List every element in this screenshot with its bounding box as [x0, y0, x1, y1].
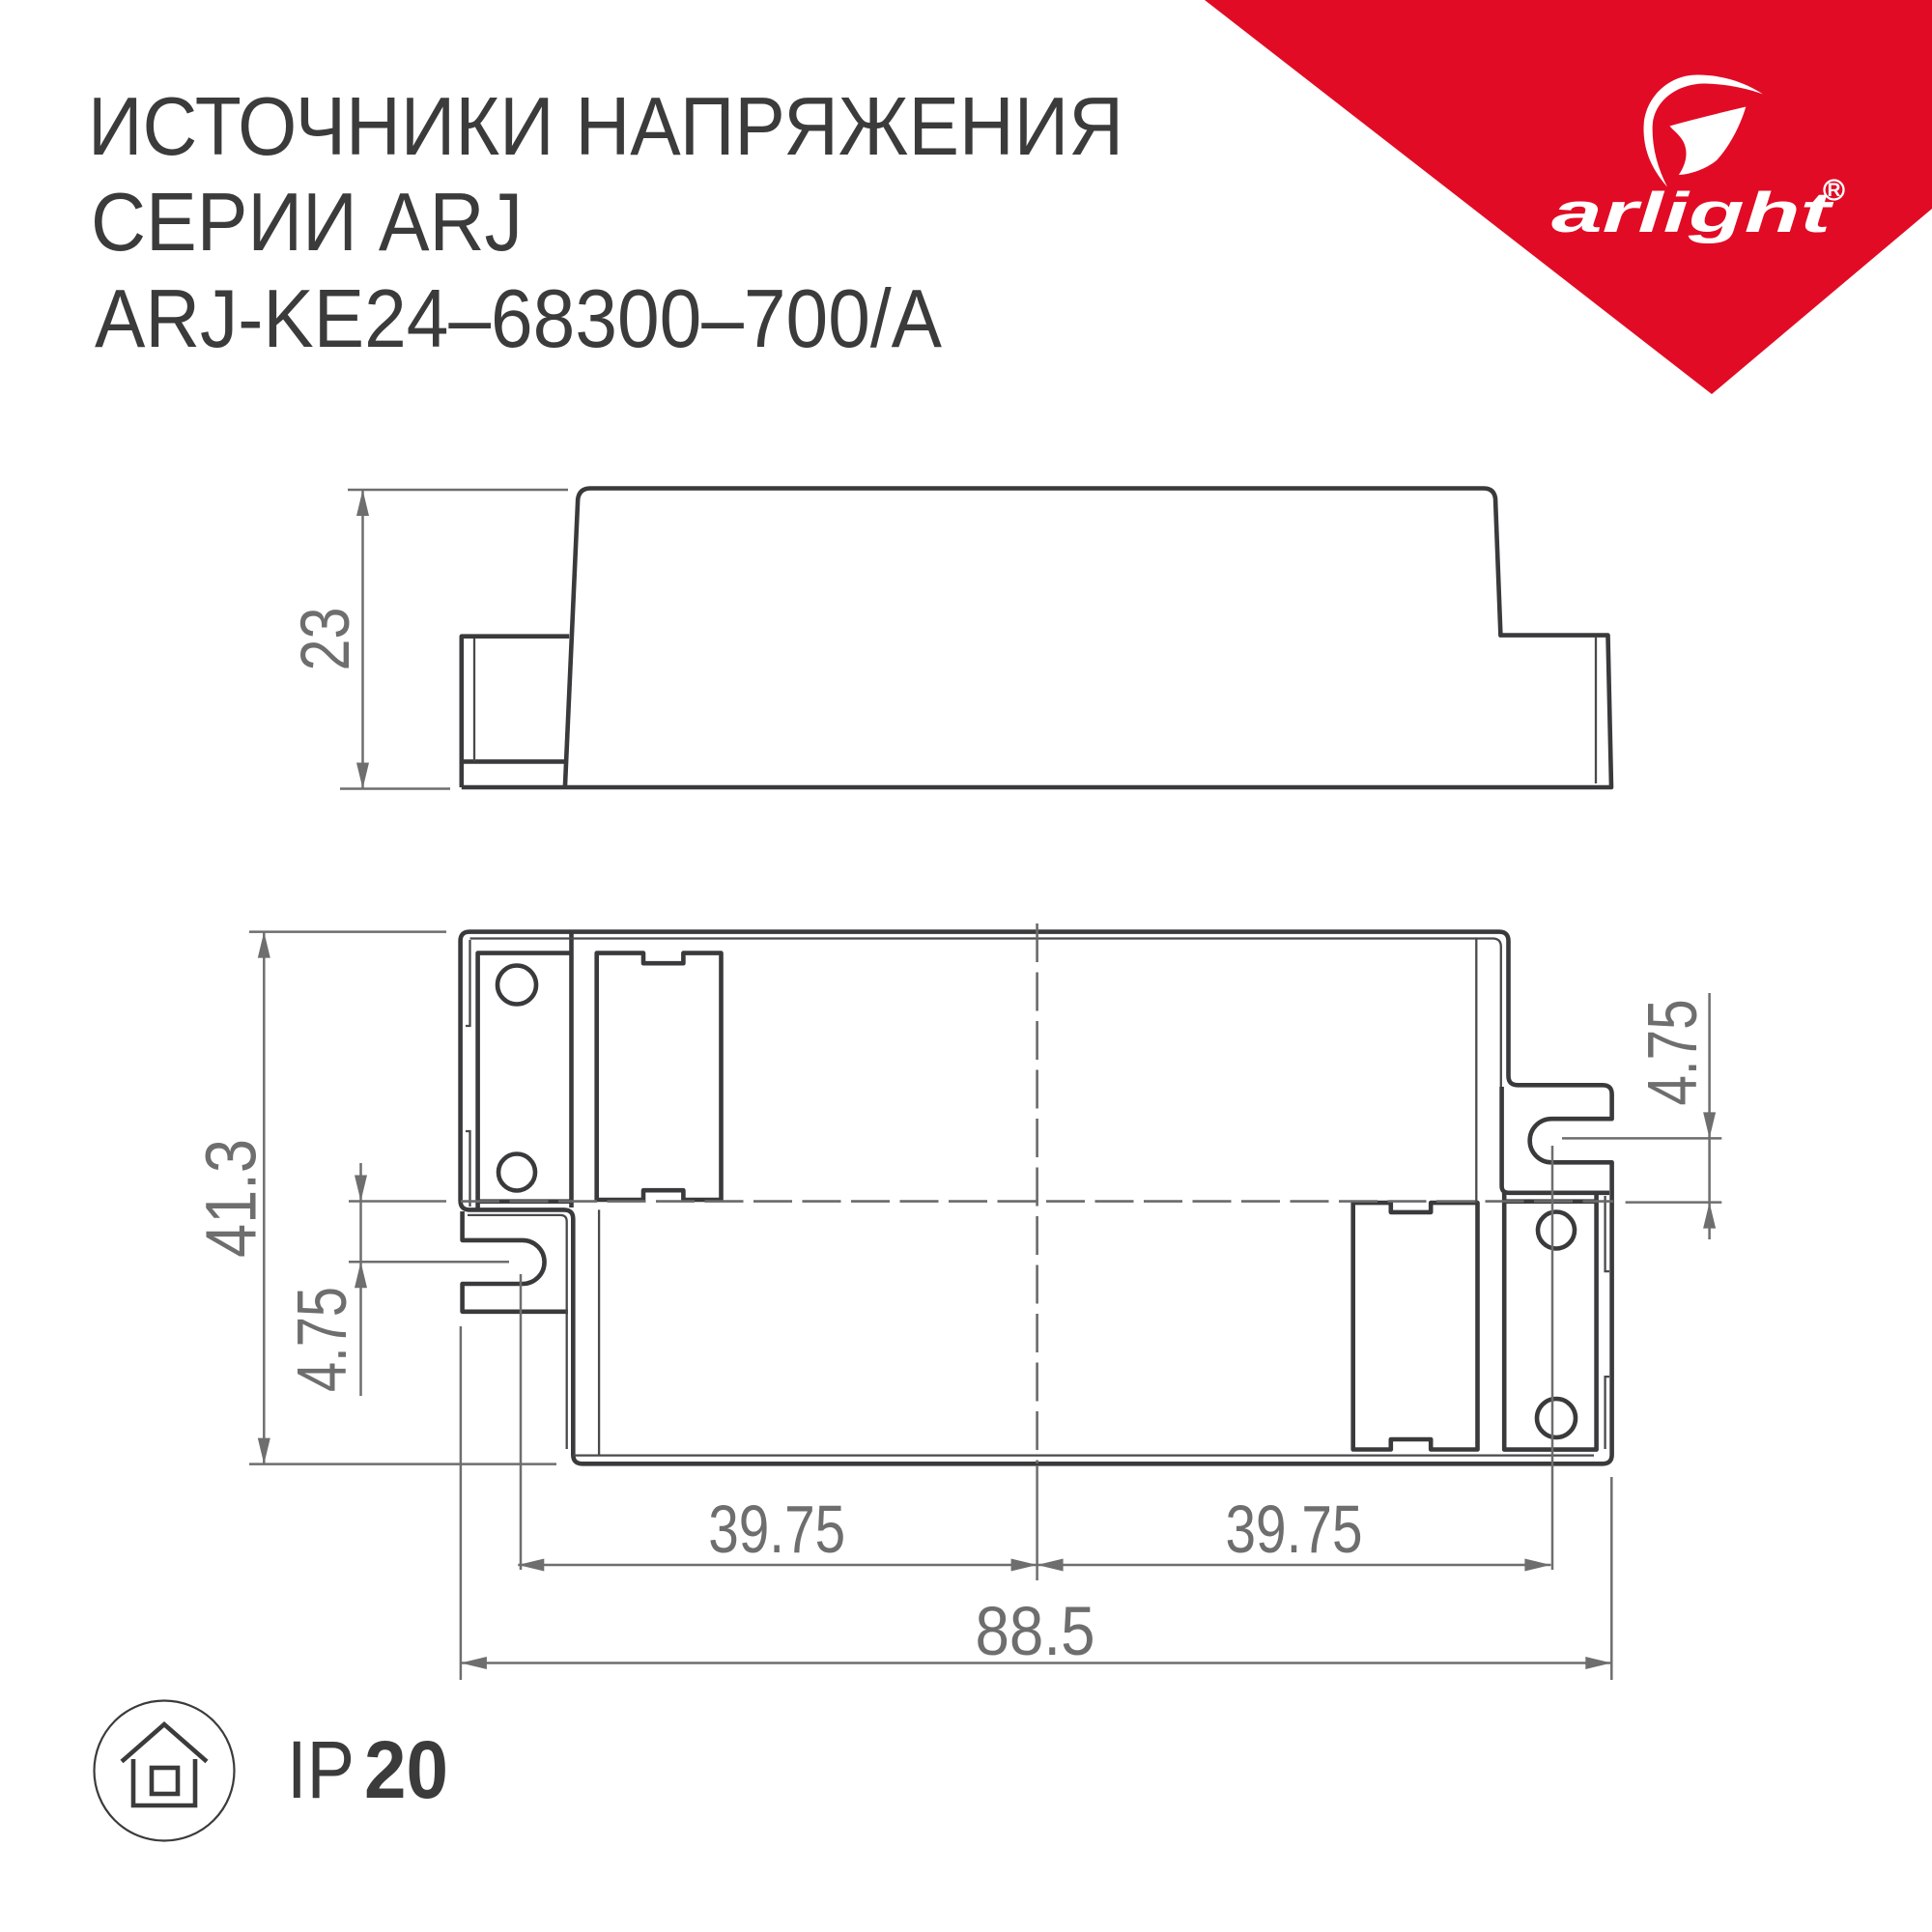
svg-text:23: 23: [288, 608, 364, 671]
svg-text:88.5: 88.5: [976, 1594, 1095, 1670]
svg-text:39.75: 39.75: [1226, 1492, 1363, 1567]
svg-text:arlight: arlight: [1551, 182, 1834, 244]
svg-text:4.75: 4.75: [1634, 1000, 1712, 1106]
svg-text:IP: IP: [287, 1724, 355, 1815]
svg-text:39.75: 39.75: [708, 1492, 845, 1567]
svg-text:41.3: 41.3: [191, 1139, 271, 1258]
svg-text:R: R: [1828, 181, 1841, 201]
svg-text:СЕРИИ ARJ: СЕРИИ ARJ: [91, 177, 523, 269]
svg-text:4.75: 4.75: [284, 1287, 361, 1392]
svg-text:ИСТОЧНИКИ НАПРЯЖЕНИЯ: ИСТОЧНИКИ НАПРЯЖЕНИЯ: [88, 81, 1123, 173]
svg-text:20: 20: [364, 1724, 448, 1815]
svg-text:ARJ-KE24–68300–700/A: ARJ-KE24–68300–700/A: [95, 273, 942, 365]
